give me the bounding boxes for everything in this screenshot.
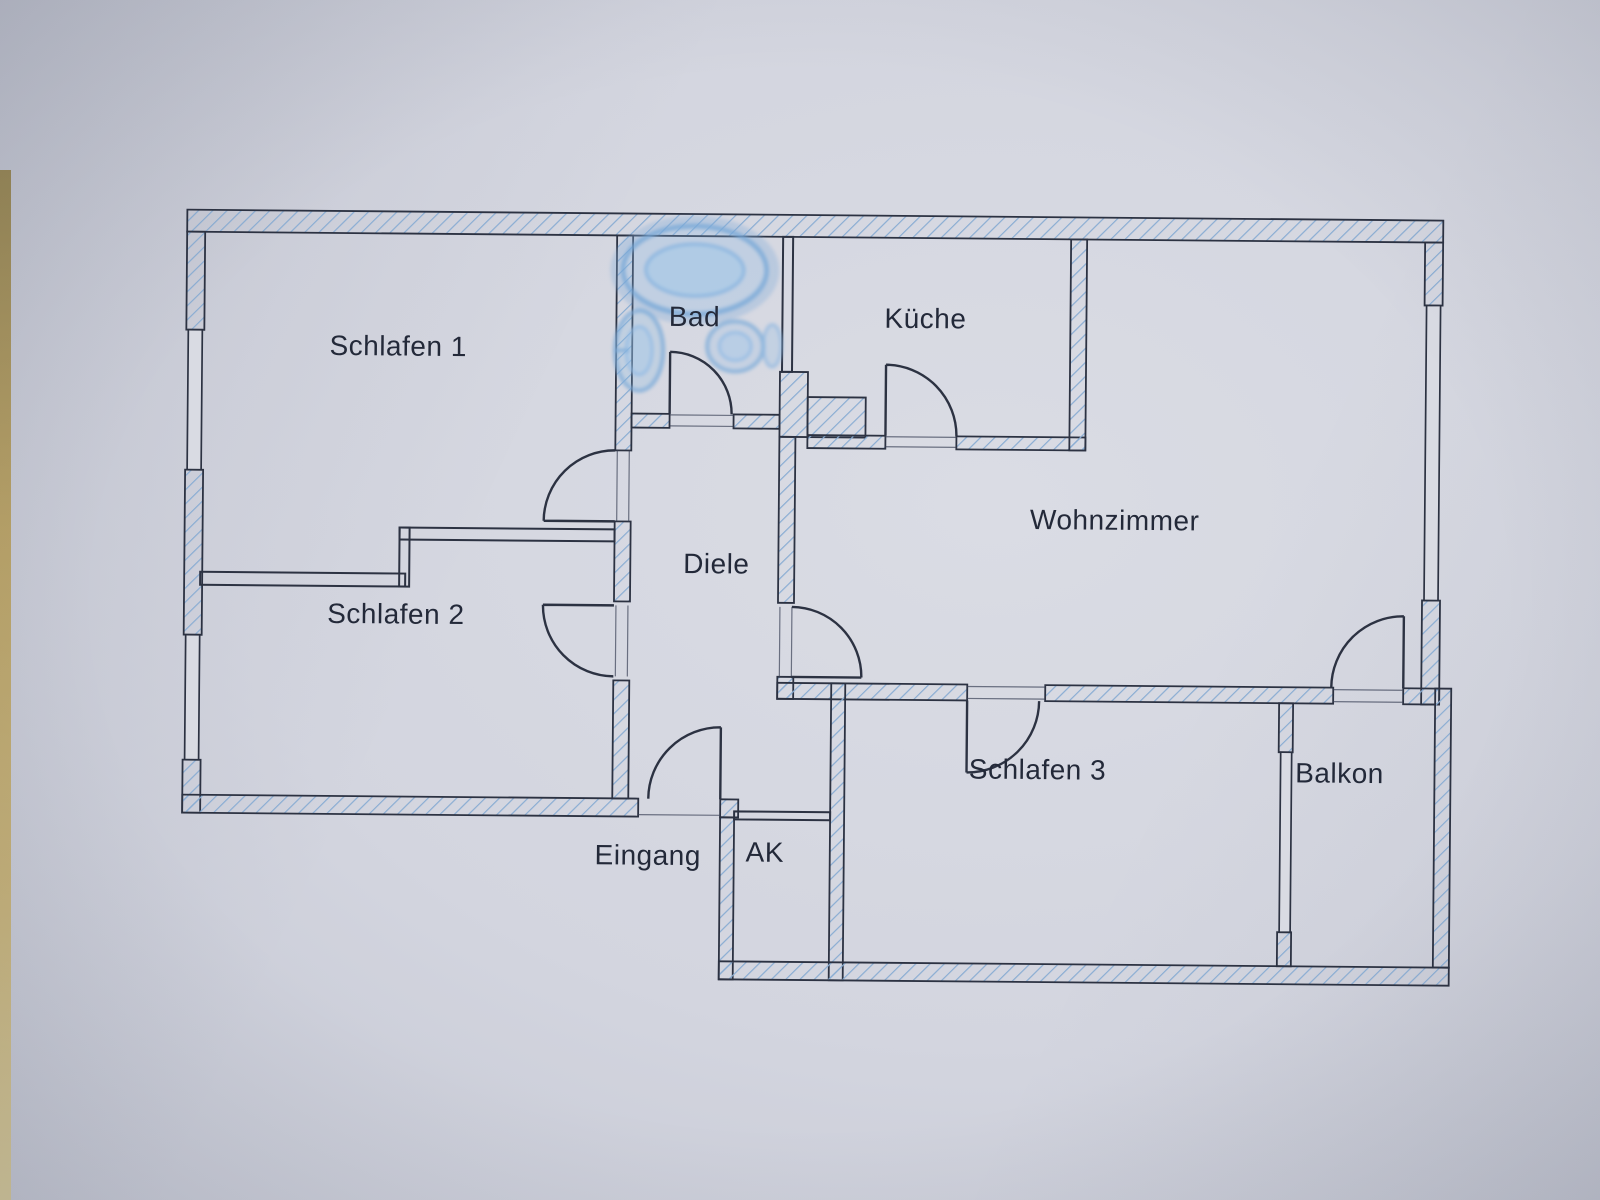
label-bad: Bad [669, 301, 721, 332]
label-wohnzimmer: Wohnzimmer [1030, 504, 1200, 536]
wall-schlafen3-west [829, 683, 846, 980]
room-schlafen-3 [843, 699, 1279, 966]
wall-ak-west [719, 817, 734, 979]
wall-mid-right-stub [1403, 688, 1439, 704]
wall-diele-west-middle [614, 521, 631, 601]
window-schlafen3-balkon [1279, 752, 1292, 932]
wall-diele-west-lower [612, 680, 629, 798]
label-diele: Diele [683, 548, 750, 580]
wall-balkon-west-upper [1279, 703, 1293, 752]
wall-balkon-east [1433, 689, 1451, 968]
wall-right-upper [1425, 242, 1444, 305]
wall-mid-center [1045, 685, 1333, 704]
room-diele [628, 428, 779, 800]
room-schlafen-1 [203, 232, 618, 526]
partition-schlafen1-2-left [200, 572, 405, 587]
partition-schlafen1-2-right [400, 528, 615, 542]
scanned-floor-plan: Schlafen 1 Schlafen 2 Schlafen 3 Bad Küc… [0, 0, 1600, 1200]
floor-plan-drawing: Schlafen 1 Schlafen 2 Schlafen 3 Bad Küc… [0, 0, 1600, 1200]
label-balkon: Balkon [1295, 757, 1384, 789]
window-schlafen1 [187, 330, 202, 470]
wall-left-upper [186, 232, 205, 330]
wall-diele-east-upper [778, 437, 795, 603]
label-ak: AK [745, 837, 784, 868]
wall-left-middle [184, 470, 203, 635]
wall-bad-south-left [631, 414, 669, 428]
label-kueche: Küche [884, 303, 966, 335]
label-schlafen-1: Schlafen 1 [329, 330, 467, 362]
label-eingang: Eingang [595, 839, 702, 871]
label-schlafen-2: Schlafen 2 [327, 598, 465, 630]
wall-balkon-west-lower [1277, 932, 1291, 966]
window-schlafen2 [185, 635, 200, 760]
partition-ak-top [734, 811, 830, 820]
label-schlafen-3: Schlafen 3 [969, 753, 1107, 785]
room-balkon [1291, 703, 1435, 967]
partition-bad-kueche [782, 237, 793, 372]
wall-mid-left [777, 683, 967, 701]
wall-bad-south-right [733, 414, 779, 428]
wall-bottom-left-stub [720, 799, 738, 817]
window-wohnzimmer [1424, 305, 1441, 600]
